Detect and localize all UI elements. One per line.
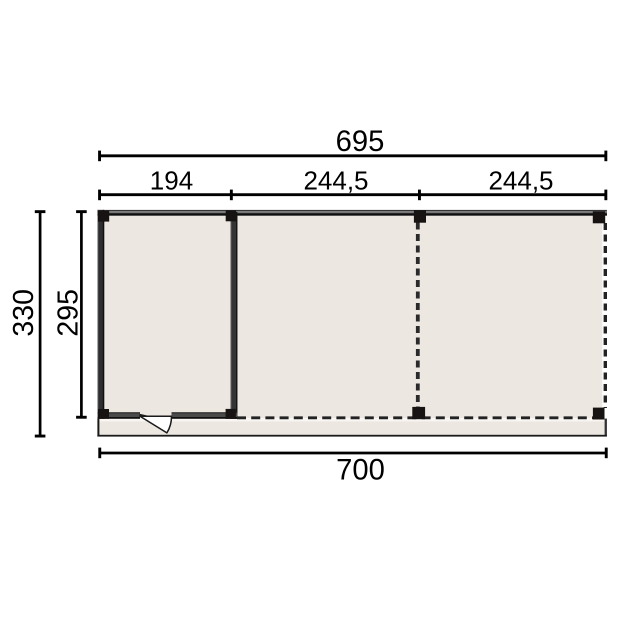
svg-text:330: 330 <box>8 289 40 337</box>
svg-text:244,5: 244,5 <box>488 166 553 196</box>
svg-text:194: 194 <box>150 166 193 196</box>
svg-text:244,5: 244,5 <box>303 166 368 196</box>
svg-text:695: 695 <box>336 126 385 158</box>
svg-text:295: 295 <box>53 289 85 337</box>
svg-text:700: 700 <box>336 454 385 486</box>
